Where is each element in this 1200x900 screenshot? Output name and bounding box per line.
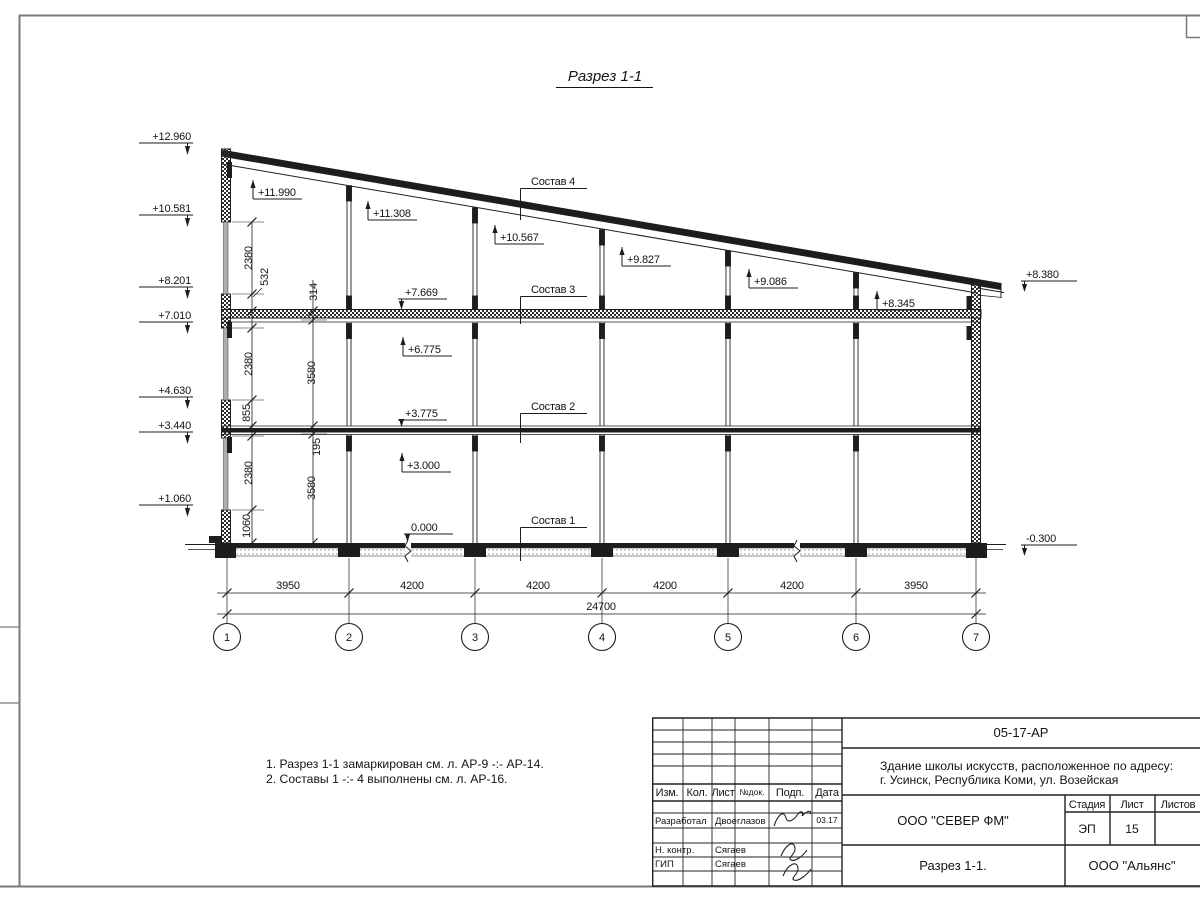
foundation-pad [966,543,987,558]
grid-and-dimensions: 3950 4200 4200 4200 4200 3950 24700 1 2 … [214,558,990,651]
vdim-outer-4: 2380 [243,461,255,485]
grid-label-2: 3 [472,632,478,644]
grid-label-5: 6 [853,632,859,644]
right-elevation-0: +8.380 [1026,269,1059,281]
column [600,229,605,543]
vdim-inner-0: 314 [308,283,320,301]
floor-slab-middle [222,426,982,435]
layer-label-1: Состав 3 [531,284,575,296]
sheet-value: 15 [1125,822,1139,836]
interior-elevation-up-2: +10.567 [500,232,539,244]
signature [783,864,811,881]
row-developer-name: Двоеглазов [715,816,766,827]
row-developer-role: Разработал [655,816,707,827]
row-developer-date: 03.17 [816,815,838,825]
col-header-podp: Подп. [776,787,804,799]
column [726,250,731,543]
row-gip-name: Сягаев [715,859,746,870]
drawing-title: Разрез 1-1 [556,68,653,88]
interior-elevation-up-1: +11.308 [373,208,411,220]
note-line-2: 2. Составы 1 -:- 4 выполнены см. л. АР-1… [266,772,508,786]
col-header-kol: Кол. [687,787,708,799]
interior-elevation-up-7: +3.000 [407,460,440,472]
window [224,328,229,400]
total-dim: 24700 [586,601,616,613]
floor-slab-upper [222,310,982,323]
grid-label-0: 1 [224,632,230,644]
col-header-data: Дата [815,787,840,799]
hdim-1: 4200 [400,580,424,592]
vdim-outer-3: 855 [241,404,253,422]
left-elevation-5: +3.440 [158,420,191,432]
foundation-pad [717,543,739,557]
roof [221,150,1004,298]
vdim-inner-2: 195 [311,438,323,456]
grid-label-3: 4 [599,632,605,644]
foundation-pad [845,543,867,557]
contractor-name: ООО "Альянс" [1089,858,1176,873]
vdim-inner-1: 3580 [306,361,318,385]
vdim-outer-2: 2380 [243,352,255,376]
note-line-1: 1. Разрез 1-1 замаркирован см. л. АР-9 -… [266,757,544,771]
project-name-line1: Здание школы искусств, расположенное по … [880,759,1173,773]
left-elevation-0: +12.960 [152,131,191,143]
grid-label-6: 7 [973,632,979,644]
col-header-ndok: №док. [740,787,765,797]
section-title: Разрез 1-1 [568,68,642,85]
foundation-pad [464,543,486,557]
hdim-3: 4200 [653,580,677,592]
vdim-outer-5: 1060 [241,514,253,538]
left-elevation-3: +7.010 [158,310,191,322]
window [224,222,229,294]
company-name: ООО "СЕВЕР ФМ" [897,813,1009,828]
interior-elevation-marks-down: +7.669 +3.775 0.000 [398,287,453,542]
left-elevation-2: +8.201 [158,275,191,287]
left-elevation-marks: +12.960 +10.581 +8.201 +7.010 +4.630 +3.… [139,131,193,517]
left-elevation-4: +4.630 [158,385,191,397]
drawing-sheet: Разрез 1-1 [0,0,1200,900]
row-gip-role: ГИП [655,859,674,870]
interior-elevation-down-2: 0.000 [411,522,438,534]
stage-value: ЭП [1078,822,1096,836]
layer-label-3: Состав 1 [531,515,575,527]
columns [347,185,859,543]
sheet-label: Лист [1120,799,1143,811]
section-drawing: Разрез 1-1 [0,0,1200,900]
hdim-2: 4200 [526,580,550,592]
interior-elevation-up-0: +11.990 [258,187,296,199]
hdim-5: 3950 [904,580,928,592]
grid-label-1: 2 [346,632,352,644]
vdim-outer-1: 532 [259,268,271,286]
hdim-0: 3950 [276,580,300,592]
row-ncontr-name: Сягаев [715,845,746,856]
row-ncontr-role: Н. контр. [655,845,694,856]
grid-label-4: 5 [725,632,731,644]
column [347,185,352,543]
foundation-pad [215,543,236,558]
project-name-line2: г. Усинск, Республика Коми, ул. Возейска… [880,773,1118,787]
right-elevation-1: -0.300 [1026,533,1056,545]
foundation-pad [591,543,613,557]
interior-elevation-up-4: +9.086 [754,276,787,288]
vdim-outer-0: 2380 [243,246,255,270]
interior-elevation-down-1: +3.775 [405,408,438,420]
title-block: 05-17-АР Здание школы искусств, располож… [652,718,1200,886]
format-stamp-box [1187,17,1200,38]
hdim-4: 4200 [780,580,804,592]
sheets-label: Листов [1161,799,1196,811]
notes: 1. Разрез 1-1 замаркирован см. л. АР-9 -… [266,757,544,786]
right-wall [967,282,981,543]
stage-label: Стадия [1069,799,1106,811]
left-wall [222,149,233,543]
left-elevation-6: +1.060 [158,493,191,505]
ground-slab [185,536,1006,562]
col-header-list: Лист [711,787,734,799]
layer-label-0: Состав 4 [531,176,575,188]
vdim-inner-3: 3580 [306,476,318,500]
col-header-izm: Изм. [656,787,679,799]
signature [781,844,807,861]
layer-label-2: Состав 2 [531,401,575,413]
column [473,207,478,543]
interior-elevation-up-5: +8.345 [882,298,915,310]
foundation-pad [338,543,360,557]
vertical-dim-chain-outer: 2380 532 2380 855 2380 1060 [232,218,271,548]
doc-number: 05-17-АР [994,725,1049,740]
right-elevation-marks: +8.380 -0.300 [1021,269,1077,556]
left-elevation-1: +10.581 [152,203,191,215]
sheet-title: Разрез 1-1. [919,858,986,873]
vertical-dim-chain-inner: 314 3580 195 3580 [301,280,327,548]
interior-elevation-down-0: +7.669 [405,287,438,299]
interior-elevation-up-6: +6.775 [408,344,441,356]
interior-elevation-up-3: +9.827 [627,254,660,266]
